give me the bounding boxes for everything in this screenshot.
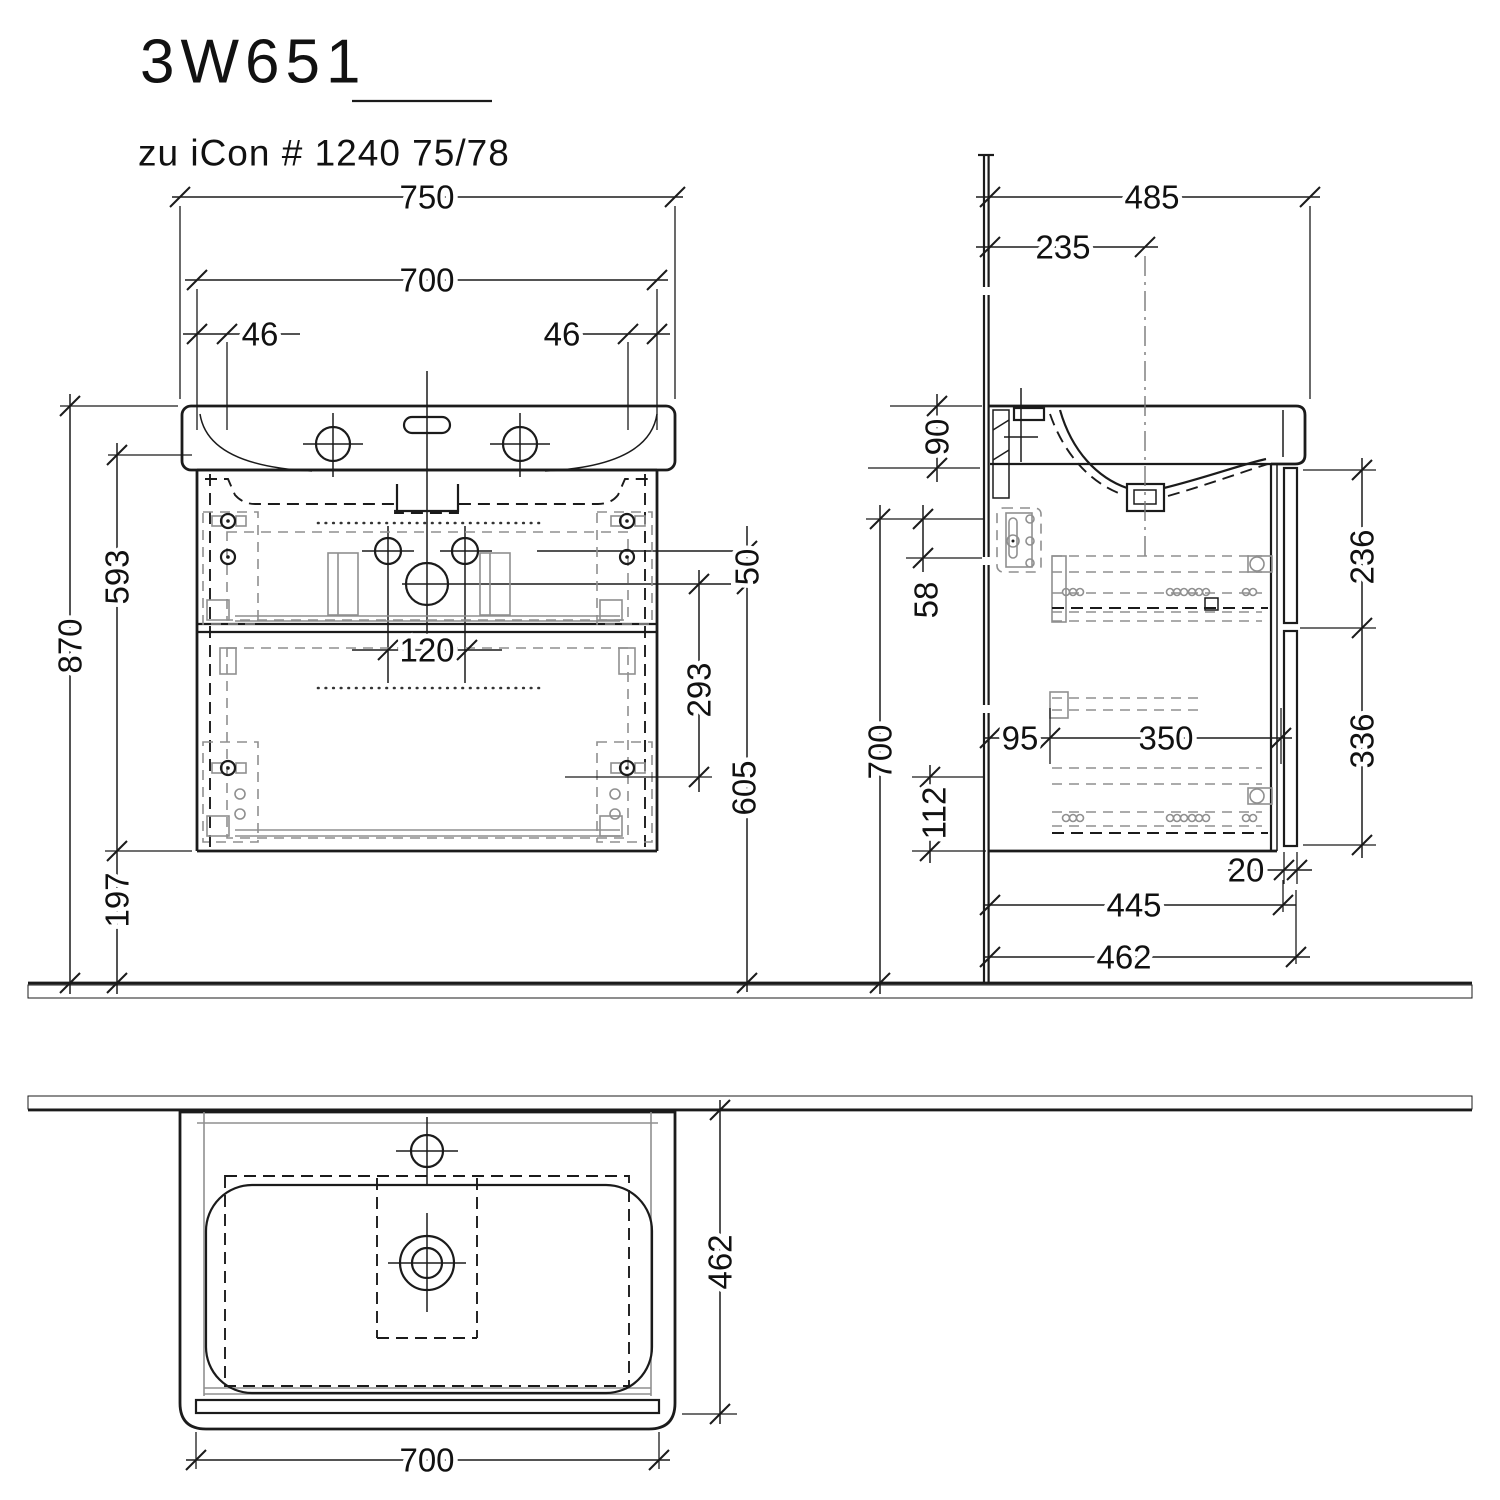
wall-hatch-band [28,1096,1472,1110]
dim-side-bottom-offset: 112 [916,787,953,840]
wall-mount-bracket [997,508,1041,572]
title-block: 3W651 zu iCon # 1240 75/78 [138,28,510,174]
dim-side-rim-height: 90 [919,419,956,456]
dim-side-slide-length: 350 [1138,720,1193,757]
dim-side-drain-depth: 235 [1035,229,1090,266]
dim-front-right-offset: 46 [544,316,581,353]
upper-slide-hardware [1052,556,1272,622]
side-dimensions: 485 235 90 700 58 112 95 350 [862,179,1381,995]
dim-front-floor-clearance: 197 [99,872,136,927]
dim-side-rear-gap: 95 [1002,720,1039,757]
dim-front-total-width: 750 [399,179,454,216]
dim-side-body-depth: 445 [1106,887,1161,924]
dim-front-cabinet-width: 700 [399,262,454,299]
technical-drawing: 3W651 zu iCon # 1240 75/78 [0,0,1500,1500]
dim-plan-width: 700 [399,1442,454,1479]
dim-side-front-thickness: 20 [1228,852,1265,889]
dim-side-wall-height: 700 [862,724,899,779]
dim-front-cabinet-height: 593 [99,549,136,604]
dim-front-left-offset: 46 [242,316,279,353]
basin-inner-corner-right [545,414,657,471]
dim-front-drain-height: 605 [726,760,763,815]
basin-front-outline [182,406,675,470]
bowl-curve-rear [1060,410,1127,488]
basin-side-profile [988,406,1305,464]
technical-drawing-page: 3W651 zu iCon # 1240 75/78 [0,0,1500,1500]
dim-front-height-total: 870 [52,618,89,673]
floor-hatch-band [28,983,1472,998]
plan-view: 462 700 [180,1100,739,1479]
dim-side-lower-front: 336 [1344,713,1381,768]
drawer-front-plan [196,1400,659,1413]
rear-ledge [993,410,1009,498]
dim-front-hole-spacing: 120 [399,632,454,669]
dim-front-fixing-span: 293 [681,662,718,717]
faucet-slot-side [1014,408,1044,420]
dim-side-overall-depth: 462 [1096,939,1151,976]
side-view: 485 235 90 700 58 112 95 350 [862,155,1381,994]
upper-drawer-front-side [1284,468,1297,623]
drawing-number: 3W651 [140,28,366,97]
dim-plan-depth: 462 [702,1234,739,1289]
dim-side-depth-total: 485 [1124,179,1179,216]
dim-side-upper-front: 236 [1344,529,1381,584]
drawing-reference: zu iCon # 1240 75/78 [138,133,510,174]
basin-inner-corner-left [200,414,312,471]
plan-dimensions: 462 700 [186,1100,739,1479]
lower-slide-hardware [1050,692,1272,833]
wall-line [978,155,994,983]
lower-drawer-hardware [203,648,652,842]
dim-side-top-offset: 58 [908,582,945,619]
dim-front-drain-offset: 50 [729,549,766,586]
front-dimensions: 750 700 46 46 120 870 593 197 50 605 [52,179,766,995]
front-view: 750 700 46 46 120 870 593 197 50 605 [52,179,766,995]
